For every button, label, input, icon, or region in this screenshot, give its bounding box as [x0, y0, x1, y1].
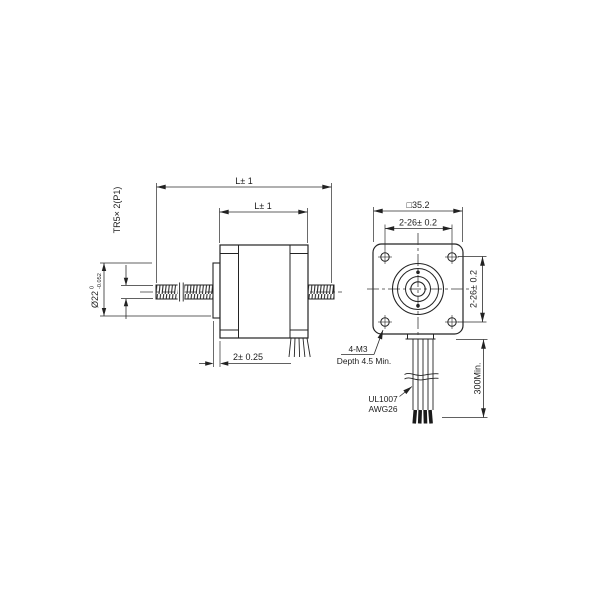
dim-body-length: L± 1 — [220, 201, 308, 243]
face-screw-dot-top — [416, 271, 420, 275]
face-screw-dot-bottom — [416, 304, 420, 308]
wire-spec-line1: UL1007 — [368, 394, 398, 404]
side-wires — [289, 338, 310, 357]
body-length-label: L± 1 — [254, 201, 271, 211]
front-wires — [405, 339, 439, 424]
thread-spec-label: TR5× 2(P1) — [112, 187, 122, 234]
motor-body-side — [220, 245, 308, 338]
flange-size-label: □35.2 — [407, 200, 430, 210]
wire-spec-line2: AWG26 — [368, 404, 397, 414]
boss-diameter-tol-lower: -0.052 — [97, 273, 103, 289]
drawing-canvas: L± 1 L± 1 TR5× 2(P1) Ø22 — [0, 0, 600, 600]
mounting-note-line2: Depth 4.5 Min. — [337, 356, 391, 366]
side-view: L± 1 L± 1 TR5× 2(P1) Ø22 — [90, 176, 343, 367]
boss-diameter-label: Ø22 — [90, 291, 100, 308]
front-view: □35.2 2-26± 0.2 2-26± 0.2 300Min. 4-M3 D… — [337, 200, 488, 424]
technical-drawing: L± 1 L± 1 TR5× 2(P1) Ø22 — [0, 0, 600, 600]
hole-spacing-v-label: 2-26± 0.2 — [469, 270, 479, 308]
pilot-boss — [213, 263, 220, 318]
wire-exit-block — [406, 334, 436, 339]
lead-screw-right — [308, 285, 334, 299]
note-mounting-holes: 4-M3 Depth 4.5 Min. — [337, 330, 391, 366]
hole-spacing-h-label: 2-26± 0.2 — [399, 218, 437, 228]
wire-stripped-ends — [414, 410, 431, 424]
dim-wire-length: 300Min. — [442, 340, 488, 418]
lead-screw-left — [156, 283, 213, 302]
wire-length-label: 300Min. — [473, 362, 483, 394]
boss-length-label: 2± 0.25 — [233, 352, 263, 362]
dim-thread-spec: TR5× 2(P1) — [112, 187, 153, 319]
mounting-note-line1: 4-M3 — [348, 344, 367, 354]
note-wire-spec: UL1007 AWG26 — [368, 387, 412, 415]
overall-length-label: L± 1 — [235, 176, 252, 186]
boss-diameter-tol-upper: 0 — [90, 286, 96, 289]
